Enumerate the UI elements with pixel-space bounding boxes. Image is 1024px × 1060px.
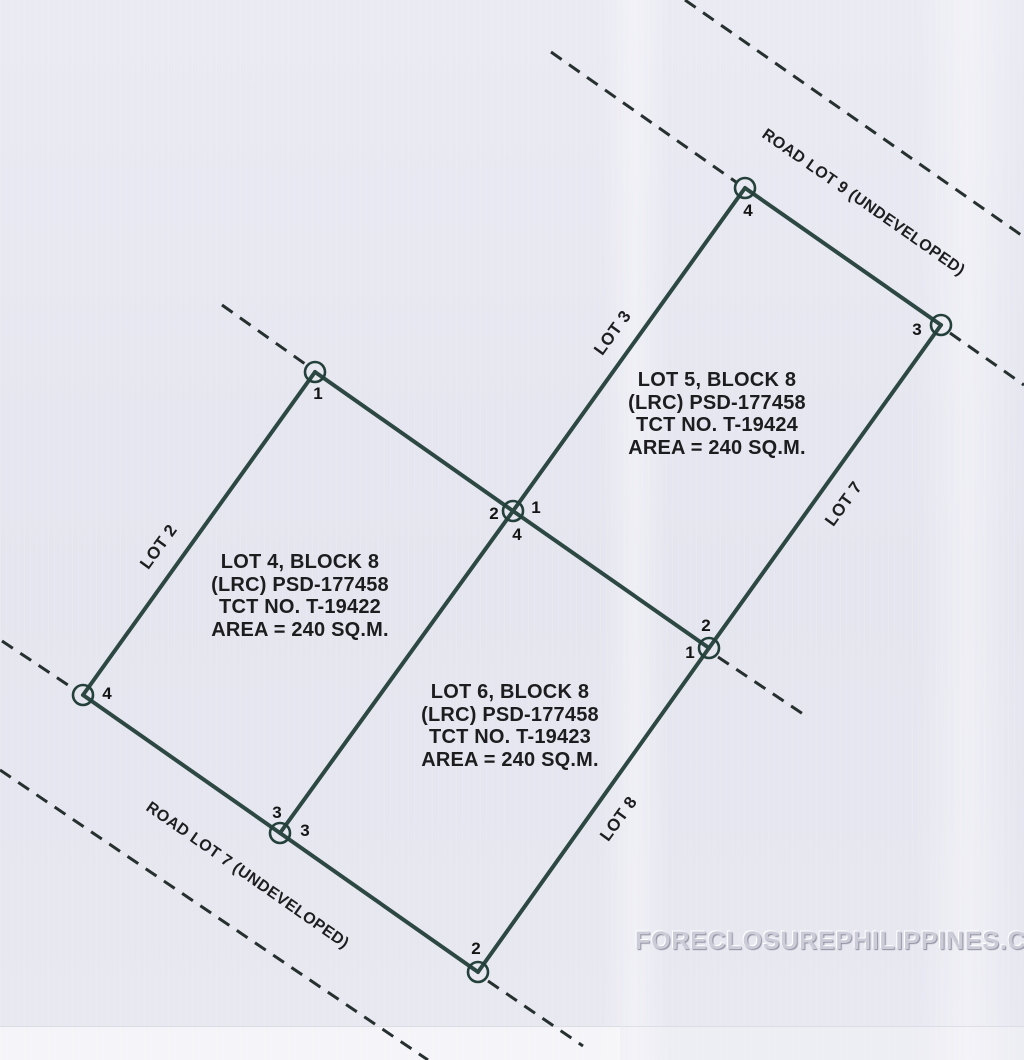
lot4-name: LOT 4, BLOCK 8: [211, 551, 389, 574]
corner-number: 3: [272, 803, 281, 823]
corner-number: 4: [743, 201, 752, 221]
road-dashed-line: [0, 770, 428, 1060]
corner-number: 2: [701, 616, 710, 636]
corner-number: 3: [300, 821, 309, 841]
lot-boundary-line: [513, 188, 745, 511]
lot-boundary-line: [280, 833, 478, 972]
road-dashed-line: [718, 657, 806, 716]
watermark: FORECLOSUREPHILIPPINES.COM: [635, 927, 1024, 956]
lot6-psd: (LRC) PSD-177458: [421, 704, 599, 727]
lot5-info-block: LOT 5, BLOCK 8 (LRC) PSD-177458 TCT NO. …: [628, 369, 806, 459]
road-dashed-line: [2, 641, 74, 689]
lot6-area: AREA = 240 SQ.M.: [421, 749, 599, 772]
lot4-tct: TCT NO. T-19422: [211, 596, 389, 619]
lot4-area: AREA = 240 SQ.M.: [211, 619, 389, 642]
road-dashed-line: [551, 52, 736, 182]
road-dashed-line: [222, 305, 308, 366]
road-dashed-line: [950, 333, 1024, 385]
lot-boundary-line: [513, 511, 709, 648]
lot4-info-block: LOT 4, BLOCK 8 (LRC) PSD-177458 TCT NO. …: [211, 551, 389, 641]
scanned-survey-plan: LOT 4, BLOCK 8 (LRC) PSD-177458 TCT NO. …: [0, 0, 1024, 1060]
corner-number: 4: [512, 525, 521, 545]
road-dashed-line: [488, 981, 583, 1046]
lot5-area: AREA = 240 SQ.M.: [628, 437, 806, 460]
corner-number: 1: [313, 384, 322, 404]
corner-number: 3: [912, 320, 921, 340]
lot5-name: LOT 5, BLOCK 8: [628, 369, 806, 392]
corner-number: 4: [102, 684, 111, 704]
corner-number: 1: [531, 498, 540, 518]
lot-boundary-line: [745, 188, 941, 325]
corner-number: 2: [471, 939, 480, 959]
lot-boundary-line: [83, 372, 315, 695]
lot4-psd: (LRC) PSD-177458: [211, 574, 389, 597]
lot-boundary-line: [83, 695, 280, 833]
lot6-tct: TCT NO. T-19423: [421, 726, 599, 749]
lot-boundary-line: [315, 372, 513, 511]
lot5-psd: (LRC) PSD-177458: [628, 392, 806, 415]
corner-number: 2: [489, 504, 498, 524]
lot6-info-block: LOT 6, BLOCK 8 (LRC) PSD-177458 TCT NO. …: [421, 681, 599, 771]
lot6-name: LOT 6, BLOCK 8: [421, 681, 599, 704]
lot5-tct: TCT NO. T-19424: [628, 414, 806, 437]
corner-number: 1: [685, 643, 694, 663]
